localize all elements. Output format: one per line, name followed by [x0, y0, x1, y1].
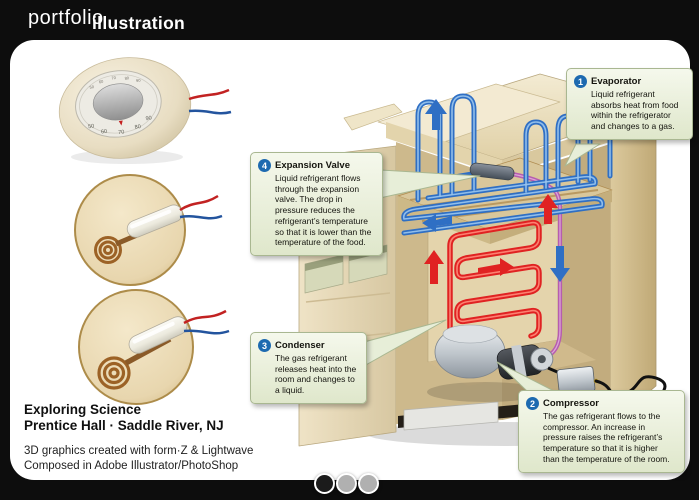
callout-evaporator: 1 Evaporator Liquid refrigerant absorbs …: [566, 68, 693, 140]
step-badge-3: 3: [258, 339, 271, 352]
callout-title: Compressor: [543, 398, 599, 409]
callout-condenser: 3 Condenser The gas refrigerant releases…: [250, 332, 367, 404]
callout-body: Liquid refrigerant absorbs heat from foo…: [591, 89, 684, 132]
callout-body: The gas refrigerant releases heat into t…: [275, 353, 358, 396]
portfolio-page: portfolio illustration 50: [0, 0, 699, 500]
step-badge-1: 1: [574, 75, 587, 88]
callout-compressor: 2 Compressor The gas refrigerant flows t…: [518, 390, 685, 473]
content-panel: 50 60 70 80 90 50 60 70 80 90: [10, 40, 690, 480]
pagination-dot-1[interactable]: [314, 473, 335, 494]
callout-body: Liquid refrigerant flows through the exp…: [275, 173, 374, 248]
callout-title: Condenser: [275, 340, 325, 351]
brand-illustration: illustration: [92, 13, 185, 34]
credit-client-line1: Exploring Science: [24, 402, 224, 418]
pagination-dot-3[interactable]: [358, 473, 379, 494]
credit-tools-line1: 3D graphics created with form·Z & Lightw…: [24, 444, 253, 459]
credit-client-line2: Prentice Hall · Saddle River, NJ: [24, 418, 224, 434]
pagination-dot-2[interactable]: [336, 473, 357, 494]
tool-credits: 3D graphics created with form·Z & Lightw…: [24, 444, 253, 474]
project-credits: Exploring Science Prentice Hall · Saddle…: [24, 402, 224, 435]
step-badge-2: 2: [526, 397, 539, 410]
callout-title: Evaporator: [591, 76, 641, 87]
credit-tools-line2: Composed in Adobe Illustrator/PhotoShop: [24, 459, 253, 474]
step-badge-4: 4: [258, 159, 271, 172]
callout-body: The gas refrigerant flows to the compres…: [543, 411, 676, 465]
callout-title: Expansion Valve: [275, 160, 350, 171]
site-header: portfolio illustration: [0, 0, 699, 40]
callout-expansion-valve: 4 Expansion Valve Liquid refrigerant flo…: [250, 152, 383, 256]
